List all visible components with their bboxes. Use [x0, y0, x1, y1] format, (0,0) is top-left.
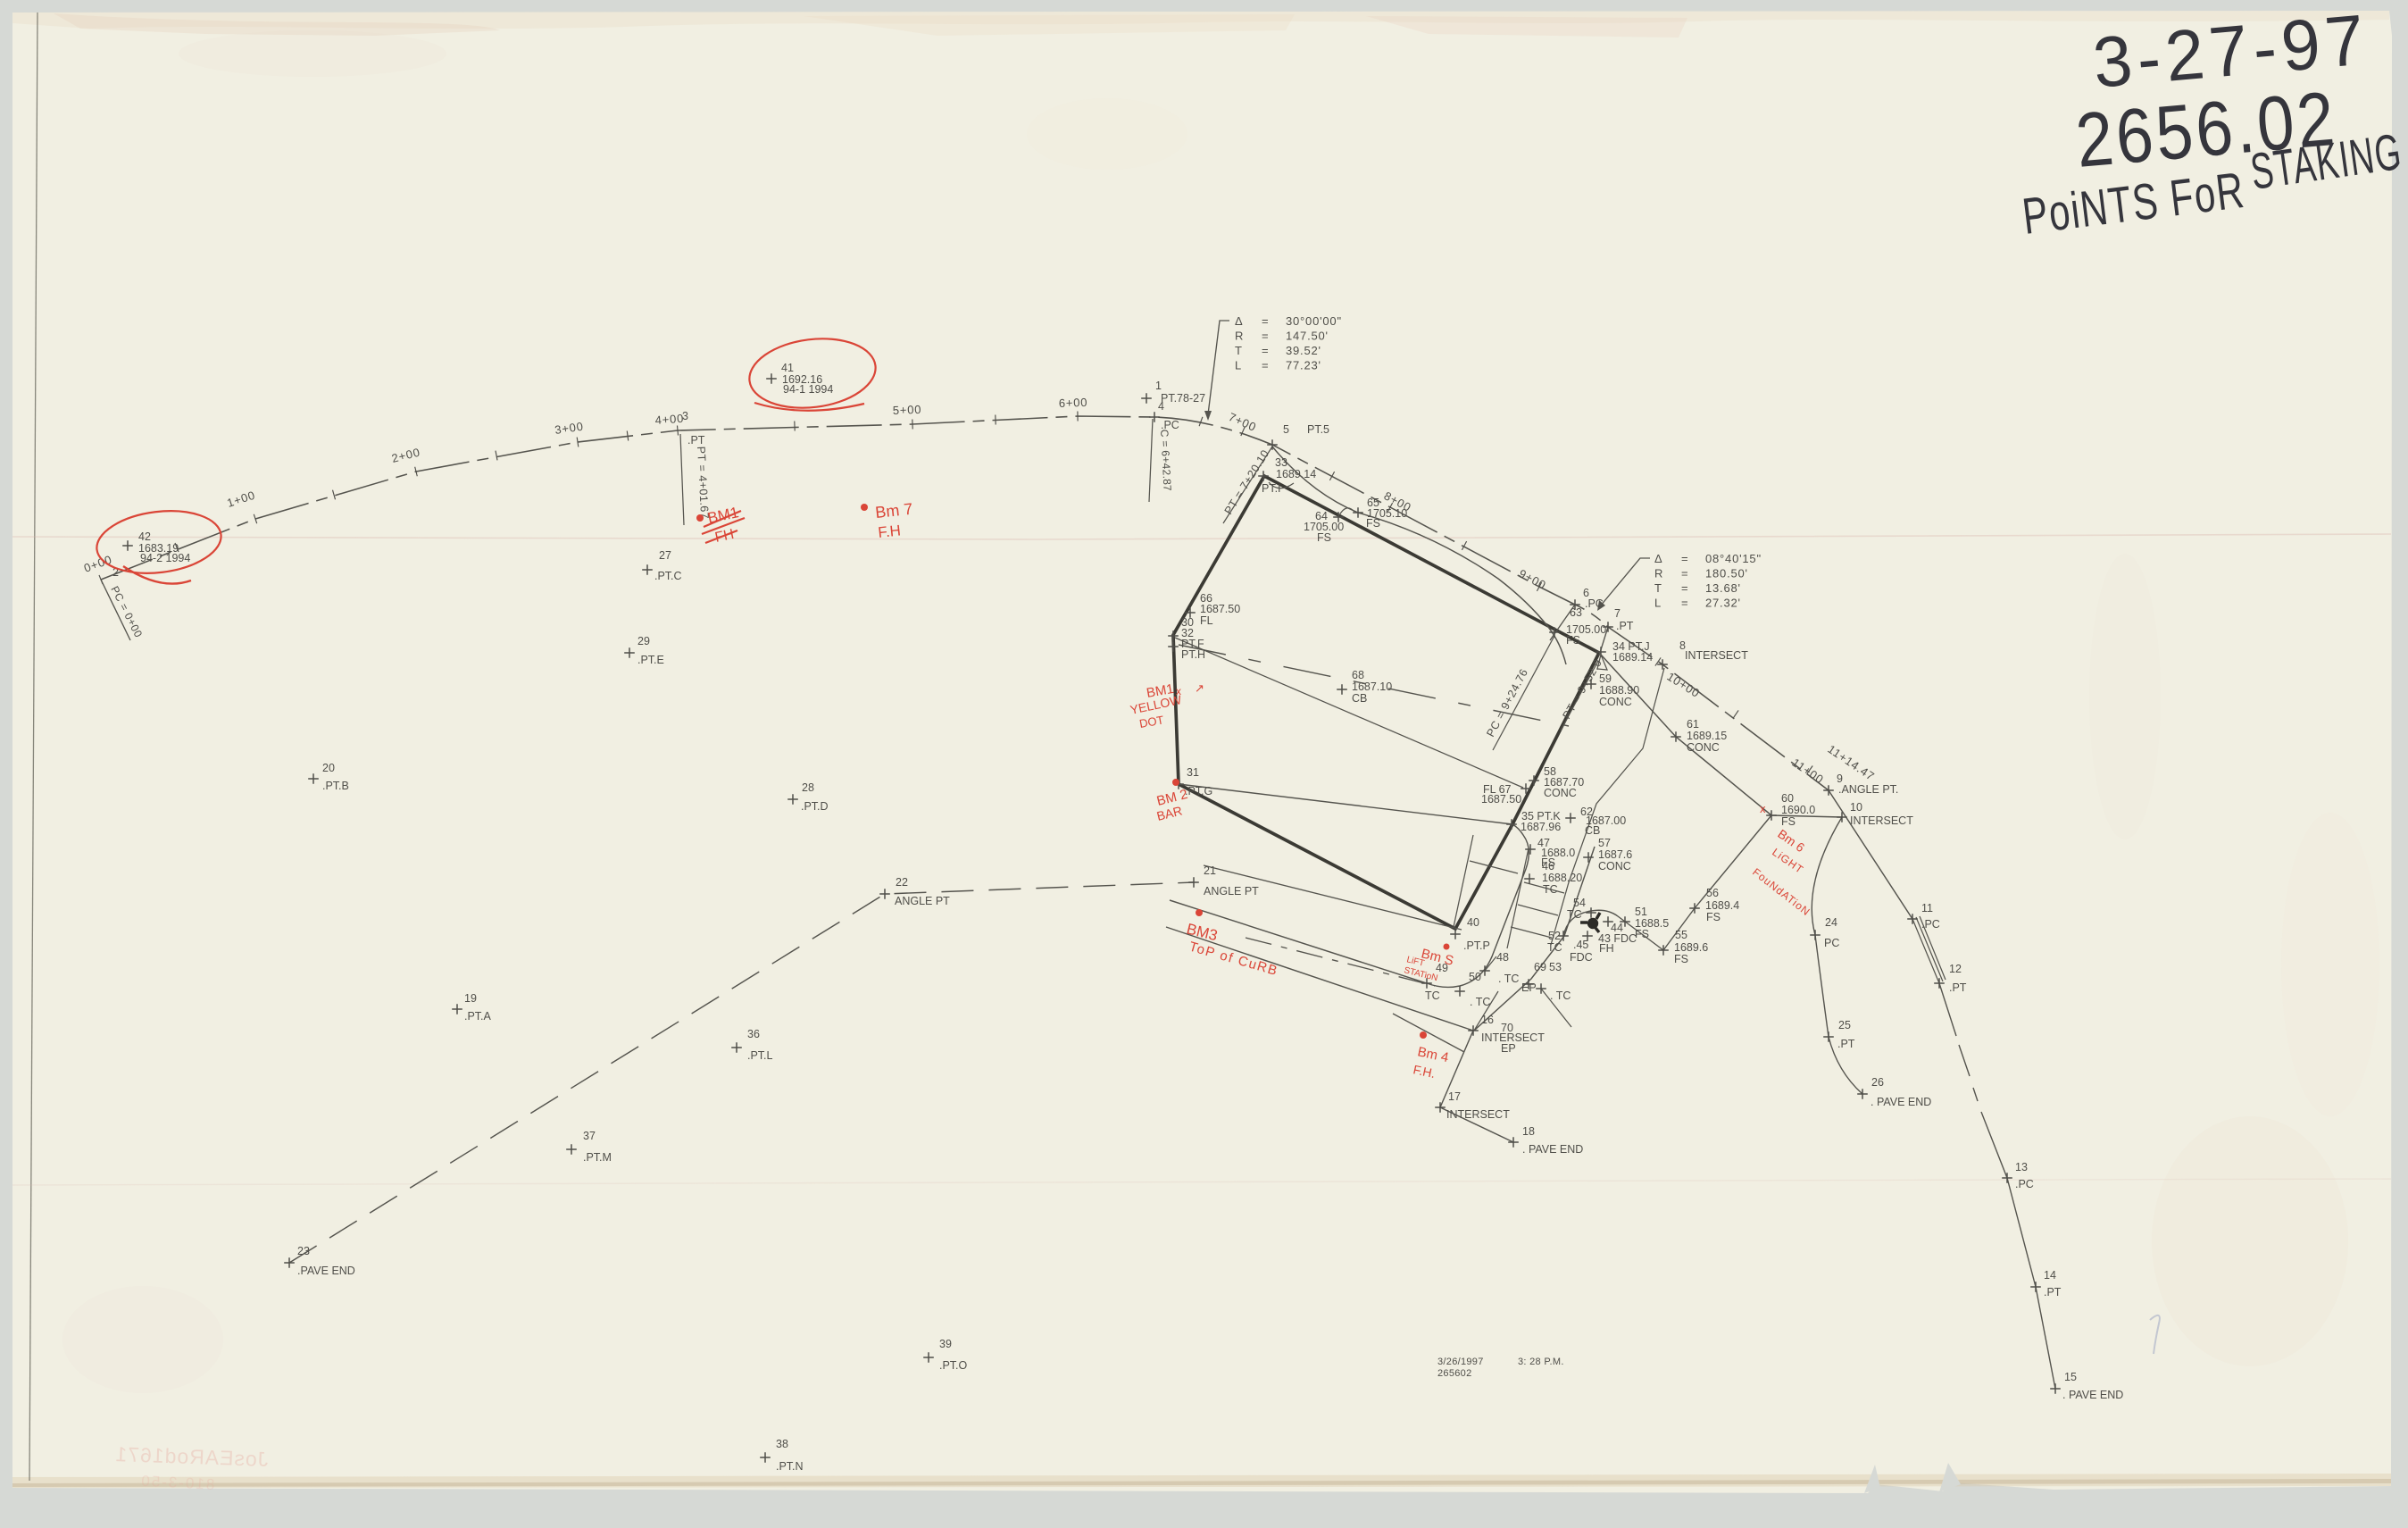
- svg-text:1687.50: 1687.50: [1481, 793, 1521, 806]
- svg-text:39.52': 39.52': [1286, 344, 1321, 357]
- svg-text:Δ: Δ: [1235, 314, 1243, 328]
- svg-text:.PT.N: .PT.N: [776, 1460, 804, 1473]
- svg-text:94-2 1994: 94-2 1994: [140, 552, 190, 564]
- svg-text:L: L: [1654, 597, 1661, 610]
- svg-text:15: 15: [2064, 1371, 2077, 1383]
- svg-text:1689.4: 1689.4: [1705, 899, 1739, 912]
- svg-text:TC: TC: [1425, 989, 1440, 1002]
- svg-text:INTERSECT: INTERSECT: [1446, 1108, 1510, 1121]
- svg-text:53: 53: [1549, 961, 1562, 973]
- svg-text:94-1 1994: 94-1 1994: [783, 383, 833, 396]
- svg-text:.PT.B: .PT.B: [322, 780, 349, 792]
- svg-text:51: 51: [1635, 906, 1647, 918]
- svg-text:FL: FL: [1200, 614, 1213, 627]
- svg-text:31: 31: [1187, 766, 1199, 779]
- svg-text:FS: FS: [1674, 953, 1688, 965]
- svg-text:16: 16: [1481, 1014, 1494, 1026]
- svg-text:40: 40: [1467, 916, 1479, 929]
- svg-text:18: 18: [1522, 1125, 1535, 1138]
- svg-text:.PT: .PT: [1616, 620, 1634, 632]
- svg-text:60: 60: [1781, 792, 1794, 805]
- svg-text:56: 56: [1706, 887, 1719, 899]
- svg-text:77.23': 77.23': [1286, 359, 1321, 372]
- svg-text:6+00: 6+00: [1059, 396, 1088, 410]
- svg-text:10: 10: [1850, 801, 1862, 814]
- svg-text:27: 27: [659, 549, 671, 562]
- svg-text:CONC: CONC: [1544, 787, 1577, 799]
- svg-text:42: 42: [138, 530, 151, 543]
- svg-text:7: 7: [1614, 607, 1621, 620]
- svg-text:1687.96: 1687.96: [1521, 821, 1561, 833]
- svg-text:50: 50: [1469, 971, 1481, 983]
- svg-text:CB: CB: [1352, 692, 1367, 705]
- svg-text:FS: FS: [1541, 856, 1555, 869]
- svg-text:17: 17: [1448, 1090, 1461, 1103]
- svg-text:. PAVE END: . PAVE END: [2062, 1389, 2123, 1401]
- svg-text:.PC: .PC: [1585, 597, 1604, 610]
- svg-text:=: =: [1262, 314, 1269, 328]
- svg-text:23: 23: [297, 1245, 310, 1257]
- svg-text:PC: PC: [1824, 937, 1839, 949]
- svg-text:08°40'15": 08°40'15": [1705, 552, 1762, 565]
- svg-text:. TC: . TC: [1470, 996, 1490, 1008]
- svg-text:1689.14: 1689.14: [1276, 468, 1316, 480]
- svg-text:39: 39: [939, 1338, 952, 1350]
- svg-text:CONC: CONC: [1687, 741, 1720, 754]
- svg-text:25: 25: [1838, 1019, 1851, 1031]
- svg-text:ANGLE PT: ANGLE PT: [1204, 885, 1259, 898]
- svg-text:59: 59: [1599, 672, 1612, 685]
- svg-text:55: 55: [1675, 929, 1687, 941]
- svg-text:19: 19: [464, 992, 477, 1005]
- svg-text:54: 54: [1573, 897, 1586, 909]
- svg-text:CONC: CONC: [1598, 860, 1631, 873]
- svg-text:.PT.L: .PT.L: [747, 1049, 773, 1062]
- svg-text:. TC: . TC: [1550, 989, 1571, 1002]
- svg-text:. PAVE END: . PAVE END: [1871, 1096, 1931, 1108]
- svg-text:. TC: . TC: [1498, 973, 1519, 985]
- svg-text:29: 29: [637, 635, 650, 647]
- svg-text:PT.5: PT.5: [1307, 423, 1329, 436]
- svg-text:.PT.O: .PT.O: [939, 1359, 968, 1372]
- svg-text:41: 41: [781, 362, 794, 374]
- svg-text:T: T: [1654, 581, 1662, 595]
- svg-text:.45: .45: [1573, 939, 1588, 951]
- svg-text:3/26/1997: 3/26/1997: [1437, 1357, 1484, 1367]
- svg-text:R: R: [1235, 330, 1243, 343]
- svg-text:=: =: [1681, 552, 1688, 565]
- svg-text:1688.20: 1688.20: [1542, 872, 1582, 884]
- svg-text:1689.15: 1689.15: [1687, 730, 1727, 742]
- svg-text:147.50': 147.50': [1286, 330, 1329, 343]
- svg-text:PT.H: PT.H: [1181, 648, 1205, 661]
- svg-text:63: 63: [1570, 606, 1582, 619]
- svg-text:36: 36: [747, 1028, 760, 1040]
- svg-text:.PT: .PT: [687, 434, 705, 447]
- svg-text:=: =: [1681, 597, 1688, 610]
- svg-text:CB: CB: [1585, 824, 1600, 837]
- svg-text:3: 3: [682, 410, 688, 422]
- svg-text:1689.6: 1689.6: [1674, 941, 1708, 954]
- svg-text:.PT: .PT: [1949, 981, 1967, 994]
- svg-text:.PC: .PC: [2015, 1178, 2034, 1190]
- svg-text:=: =: [1681, 581, 1688, 595]
- svg-text:5: 5: [1283, 423, 1289, 436]
- svg-text:57: 57: [1598, 837, 1611, 849]
- svg-text:.PT.P: .PT.P: [1463, 939, 1490, 952]
- svg-text:TC: TC: [1567, 908, 1582, 921]
- svg-text:28: 28: [802, 781, 814, 794]
- svg-text:.PT.C: .PT.C: [654, 570, 682, 582]
- svg-text:20: 20: [322, 762, 335, 774]
- svg-text:.PC: .PC: [1921, 918, 1940, 931]
- svg-text:EP: EP: [1521, 981, 1537, 994]
- svg-text:.PT.G: .PT.G: [1185, 785, 1212, 797]
- svg-text:FS: FS: [1317, 531, 1331, 544]
- svg-text:.PT.M: .PT.M: [583, 1151, 612, 1164]
- svg-text:12: 12: [1949, 963, 1962, 975]
- svg-text:.PT.A: .PT.A: [464, 1010, 492, 1023]
- svg-text:FH: FH: [1599, 942, 1614, 955]
- svg-text:1: 1: [1155, 380, 1162, 392]
- svg-text:. PAVE END: . PAVE END: [1522, 1143, 1583, 1156]
- svg-text:52: 52: [1548, 930, 1561, 942]
- svg-text:265602: 265602: [1437, 1368, 1472, 1379]
- svg-text:21: 21: [1204, 864, 1216, 877]
- svg-text:T: T: [1235, 344, 1242, 357]
- svg-text:FS: FS: [1635, 928, 1649, 940]
- svg-text:FS: FS: [1706, 911, 1721, 923]
- svg-text:5+00: 5+00: [893, 403, 922, 417]
- svg-text:EP: EP: [1501, 1042, 1516, 1055]
- svg-text:11: 11: [1921, 902, 1933, 914]
- svg-text:FS: FS: [1566, 634, 1580, 647]
- svg-text:=: =: [1681, 567, 1688, 580]
- svg-text:24: 24: [1825, 916, 1837, 929]
- svg-text:.PAVE END: .PAVE END: [297, 1265, 355, 1277]
- svg-text:.PT: .PT: [2044, 1286, 2062, 1298]
- svg-text:CONC: CONC: [1599, 696, 1632, 708]
- svg-text:1687.10: 1687.10: [1352, 681, 1392, 693]
- svg-text:INTERSECT: INTERSECT: [1685, 649, 1748, 662]
- svg-text:27.32': 27.32': [1705, 597, 1741, 610]
- svg-text:22: 22: [896, 876, 908, 889]
- svg-text:ANGLE PT: ANGLE PT: [895, 895, 950, 907]
- svg-text:1689.14: 1689.14: [1612, 651, 1653, 664]
- svg-text:13.68': 13.68': [1705, 581, 1741, 595]
- svg-text:.PT: .PT: [1837, 1038, 1855, 1050]
- svg-text:=: =: [1262, 359, 1269, 372]
- svg-text:1690.0: 1690.0: [1781, 804, 1815, 816]
- svg-text:FDC: FDC: [1570, 951, 1593, 964]
- svg-text:F.H: F.H: [877, 522, 901, 541]
- svg-text:.PT.D: .PT.D: [801, 800, 829, 813]
- svg-text:L: L: [1235, 359, 1241, 372]
- svg-text:R: R: [1654, 567, 1662, 580]
- svg-text:44: 44: [1611, 922, 1623, 934]
- svg-text:61: 61: [1687, 718, 1699, 731]
- svg-text:26: 26: [1871, 1076, 1884, 1089]
- svg-text:38: 38: [776, 1438, 788, 1450]
- svg-text:4+00: 4+00: [654, 412, 684, 427]
- svg-text:1688.90: 1688.90: [1599, 684, 1639, 697]
- svg-text:↗: ↗: [1195, 681, 1204, 695]
- svg-text:30°00'00": 30°00'00": [1286, 314, 1342, 328]
- svg-text:14: 14: [2044, 1269, 2056, 1282]
- svg-text:x: x: [1760, 802, 1766, 815]
- svg-text:69: 69: [1534, 961, 1546, 973]
- svg-text:3: 28 P.M.: 3: 28 P.M.: [1518, 1357, 1564, 1367]
- svg-text:INTERSECT: INTERSECT: [1850, 814, 1913, 827]
- svg-text:=: =: [1262, 330, 1269, 343]
- svg-text:Δ: Δ: [1654, 552, 1662, 565]
- svg-text:68: 68: [1352, 669, 1364, 681]
- svg-text:TC: TC: [1543, 883, 1558, 896]
- svg-text:180.50': 180.50': [1705, 567, 1748, 580]
- svg-text:33: 33: [1275, 456, 1287, 469]
- svg-text:37: 37: [583, 1130, 596, 1142]
- svg-text:.ANGLE PT.: .ANGLE PT.: [1838, 783, 1898, 796]
- svg-text:.PT.E: .PT.E: [637, 654, 664, 666]
- svg-text:PT.78-27: PT.78-27: [1161, 392, 1205, 405]
- svg-text:FS: FS: [1366, 517, 1380, 530]
- svg-text:48: 48: [1496, 951, 1509, 964]
- svg-text:13: 13: [2015, 1161, 2028, 1173]
- svg-text:1687.50: 1687.50: [1200, 603, 1240, 615]
- svg-text:1687.6: 1687.6: [1598, 848, 1632, 861]
- svg-text:=: =: [1262, 344, 1269, 357]
- svg-text:TC: TC: [1547, 941, 1562, 954]
